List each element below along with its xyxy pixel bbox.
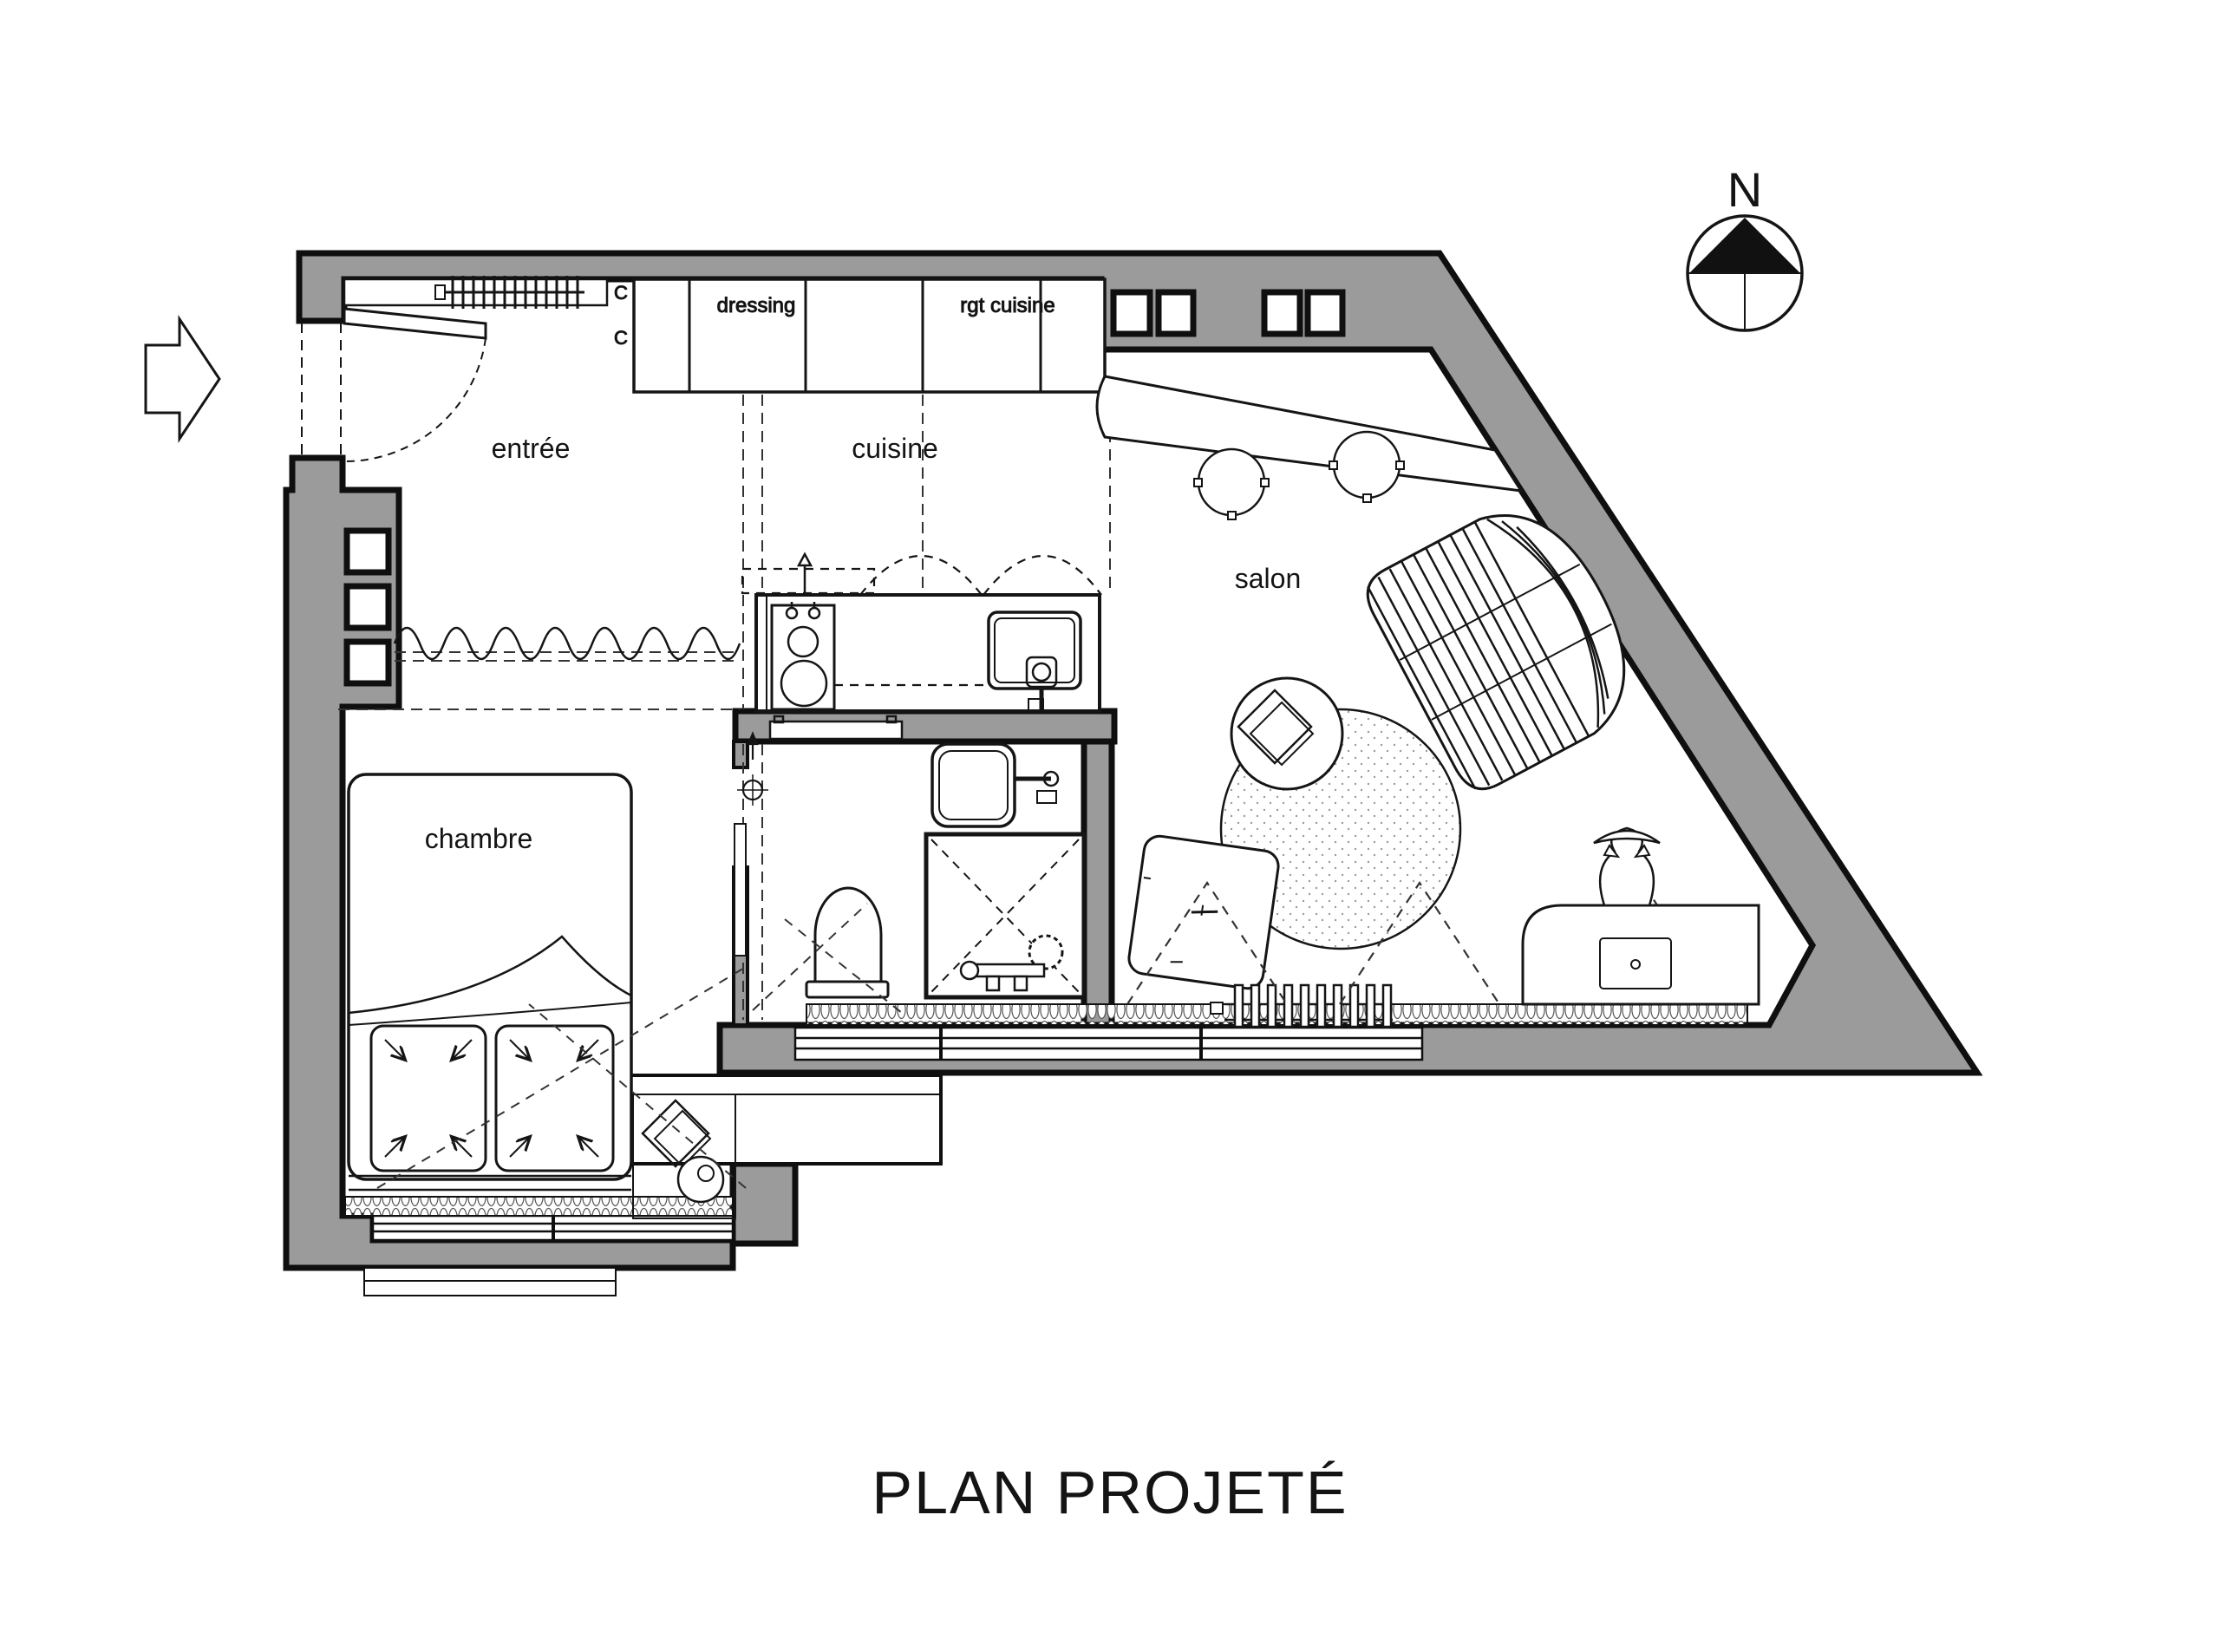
floor-plan-drawing: dressing rgt cuisine C C [0,0,2220,1652]
wall-connector [733,1164,795,1244]
window-top-3 [1264,292,1300,334]
bar-stool [1194,449,1269,519]
entry-door [302,309,486,461]
insulation-salon [806,1004,1747,1025]
sill-bedroom [364,1268,616,1296]
curtain-wave [395,628,740,659]
door-swing-arc [345,338,486,461]
north-compass: N [1688,162,1802,330]
vase [1594,828,1660,905]
vent-arrow-icon [799,554,811,592]
label-cuisine: cuisine [852,433,938,464]
wall-corridor-upper [734,741,748,767]
pillow [371,1026,486,1171]
window-top-2 [1159,292,1193,334]
window-band-bedroom [373,1216,733,1240]
label-salon: salon [1235,563,1302,594]
window-top-4 [1308,292,1342,334]
window-band-salon [795,1028,1422,1060]
coat-rack [344,276,607,309]
window-left-3 [347,642,388,683]
floor-plan-page: dressing rgt cuisine C C [0,0,2220,1652]
washbasin [932,744,1015,826]
closet-mark-c-top: C [614,282,628,304]
door-leaf [344,309,486,338]
insulation-bedroom [345,1197,733,1216]
entry-arrow-icon [146,319,219,439]
closet-label-dressing: dressing [717,294,796,317]
pillow [496,1026,613,1171]
north-label: N [1727,162,1762,217]
label-chambre: chambre [425,823,533,854]
bar-counter [1097,376,1521,519]
closet-label-rgt-cuisine: rgt cuisine [960,294,1054,317]
wall-bath-right [1084,741,1112,1025]
console-table [1523,905,1759,1004]
window-top-1 [1113,292,1150,334]
bathroom [735,716,1084,997]
shower [926,834,1084,997]
label-entree: entrée [492,433,571,464]
window-left-1 [347,531,388,572]
sliding-door-panel [735,824,746,956]
closet-row: dressing rgt cuisine C C [614,279,1105,392]
toilet [806,888,888,997]
page-title: PLAN PROJETÉ [872,1459,1348,1526]
window-left-2 [347,586,388,628]
floor-cushion [1127,834,1281,990]
closet-mark-c-bottom: C [614,327,628,349]
